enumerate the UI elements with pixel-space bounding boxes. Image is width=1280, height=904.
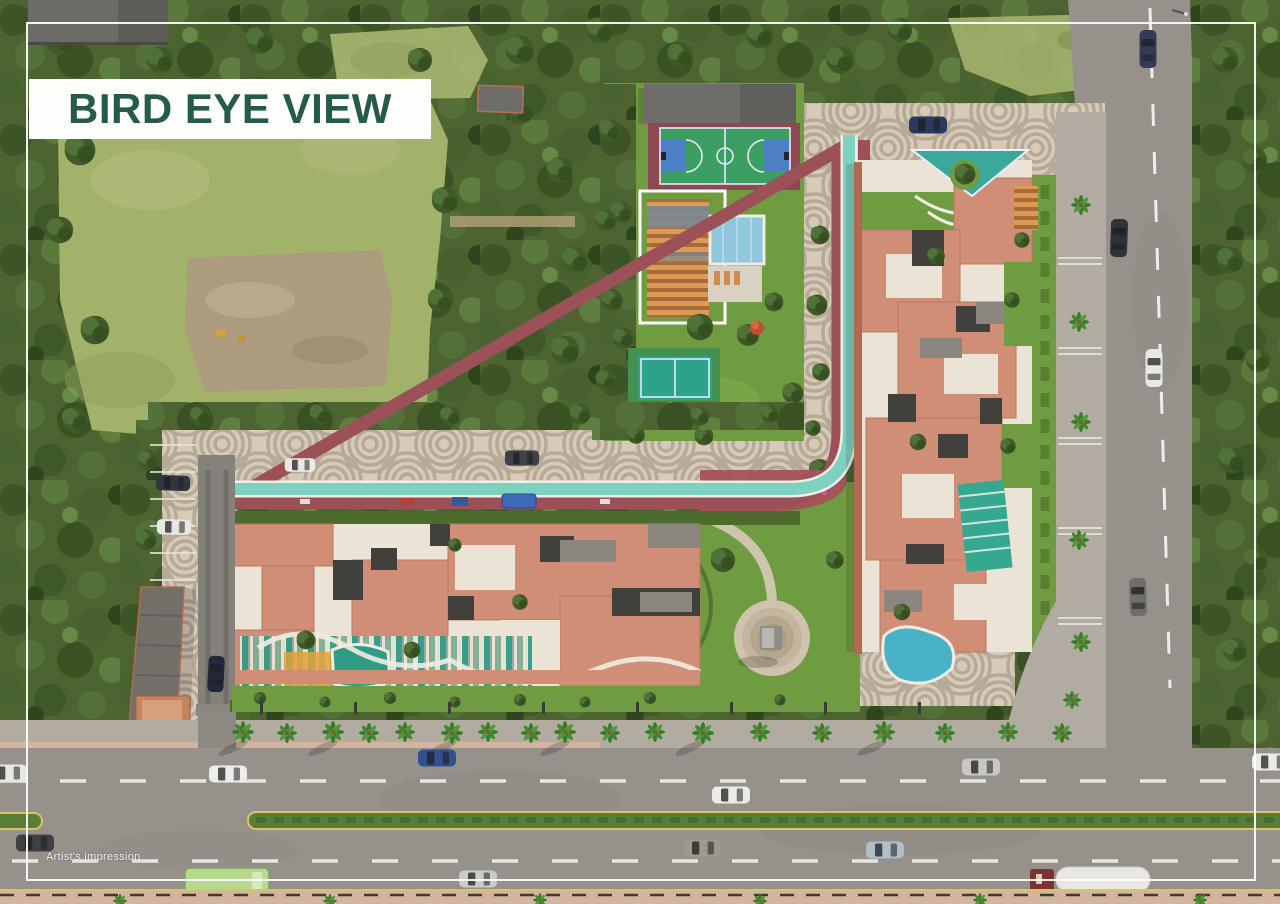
car [418,750,456,767]
bottom-road [0,712,1280,904]
brochure-page: BIRD EYE VIEW Artist's impression [0,0,1280,904]
bottom-building [226,524,700,688]
car [962,759,1000,776]
deck-courtyard [958,480,1013,572]
car [157,519,191,535]
car [866,842,904,859]
excavator [238,336,246,341]
fitness-equipment [452,497,468,506]
car [1110,219,1128,258]
car [712,787,750,804]
car [459,871,497,888]
car [1140,30,1157,68]
car [0,765,27,782]
car [209,766,247,783]
car [1146,349,1163,387]
amenity-zone [592,83,804,445]
car [1252,754,1280,771]
car [207,656,225,693]
median-hedge [0,813,42,829]
fitness-equipment [400,498,414,506]
right-building [846,150,1038,683]
pergola [1014,186,1038,230]
page-title: BIRD EYE VIEW [68,85,392,133]
tanker-truck [1030,867,1150,892]
van [285,458,315,472]
car [683,840,721,857]
car [1129,578,1147,617]
tennis-court [628,348,720,406]
car [16,835,54,852]
far-sidewalk [0,889,1280,904]
car [909,117,947,134]
title-banner: BIRD EYE VIEW [29,79,431,139]
artist-impression-caption: Artist's impression [46,851,141,863]
truck [502,494,536,508]
hedge-strip [233,511,800,525]
car [156,475,191,491]
car [505,450,539,465]
circular-plaza [734,600,810,676]
dirt-patch [185,250,392,392]
